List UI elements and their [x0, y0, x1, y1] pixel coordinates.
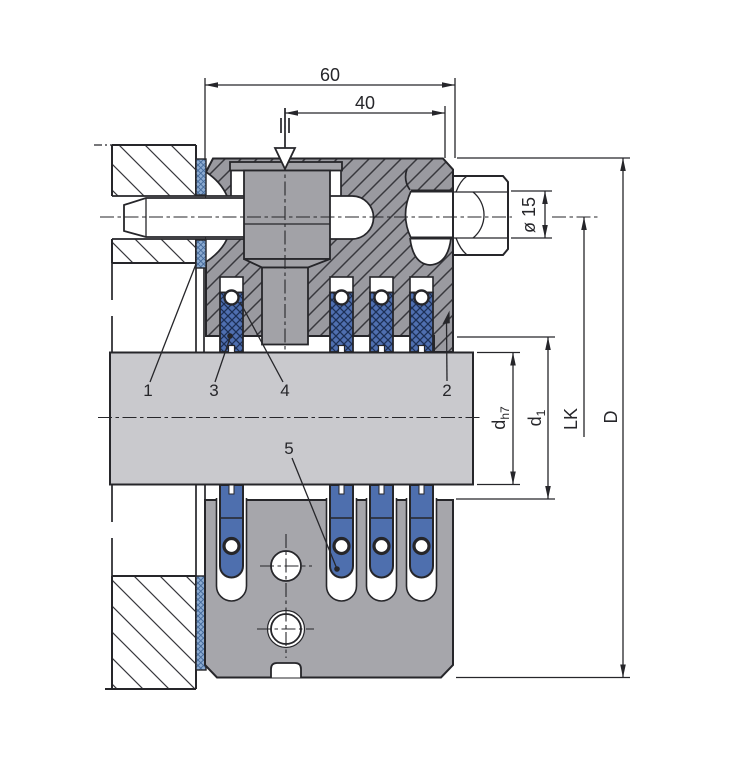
tongue-hole	[414, 539, 429, 554]
tongue-notch	[229, 485, 234, 494]
dim-bolt-diameter: ø 15	[511, 191, 552, 238]
callout-4: 4	[280, 381, 289, 400]
tongue-hole	[224, 539, 239, 554]
dim-bolt-diameter-value: ø 15	[519, 197, 539, 233]
tongue-notch	[339, 485, 344, 494]
dim-bore-diameter-value: d1	[525, 409, 548, 426]
plate-bottom-notch	[271, 663, 301, 678]
packing-tongue	[407, 485, 437, 601]
packing-tongue	[217, 485, 247, 601]
tongue-notch	[419, 485, 424, 494]
ring-notch	[379, 346, 385, 353]
screw-head	[244, 171, 330, 260]
dim-shaft-diameter-value: dh7	[489, 406, 512, 430]
tongue-hole	[374, 539, 389, 554]
packing-tongue	[367, 485, 397, 601]
packing-tongue	[327, 485, 357, 601]
packing-ring	[410, 277, 433, 353]
dim-shaft-d-sub: h7	[498, 406, 512, 420]
ring-ball	[335, 291, 349, 305]
dim-40: 40	[285, 93, 445, 158]
tongue-hole	[334, 539, 349, 554]
callout-3: 3	[209, 381, 218, 400]
packing-ring	[220, 277, 243, 353]
packing-ring	[370, 277, 393, 353]
callout-5: 5	[284, 439, 293, 458]
ring-ball	[415, 291, 429, 305]
tongue-body	[220, 485, 243, 578]
packing-ring	[330, 277, 353, 353]
dim-shaft-diameter: dh7	[477, 353, 520, 485]
ring-ball	[375, 291, 389, 305]
callout-1: 1	[143, 381, 152, 400]
dim-bolt-circle: LK	[561, 217, 587, 437]
dim-bolt-circle-value: LK	[561, 408, 581, 430]
dim-outer-diameter-value: D	[601, 411, 621, 424]
ring-notch	[339, 346, 345, 353]
tongue-body	[370, 485, 393, 578]
technical-drawing: 60 40 ø 15 dh7 d1 LK D 1	[0, 0, 731, 768]
callout-2: 2	[442, 381, 451, 400]
dim-shaft-d: d	[489, 420, 509, 430]
tongue-body	[410, 485, 433, 578]
dim-40-value: 40	[355, 93, 375, 113]
ring-notch	[419, 346, 425, 353]
ring-ball	[225, 291, 239, 305]
dim-bore-d-sub: 1	[534, 409, 548, 416]
shaft	[110, 353, 473, 485]
tongue-notch	[379, 485, 384, 494]
hex-bolt	[453, 176, 508, 255]
housing-wall-lower	[105, 576, 196, 689]
dim-60-value: 60	[320, 65, 340, 85]
dim-bore-d: d	[525, 416, 545, 426]
tongue-body	[330, 485, 353, 578]
ring-notch	[229, 346, 235, 353]
